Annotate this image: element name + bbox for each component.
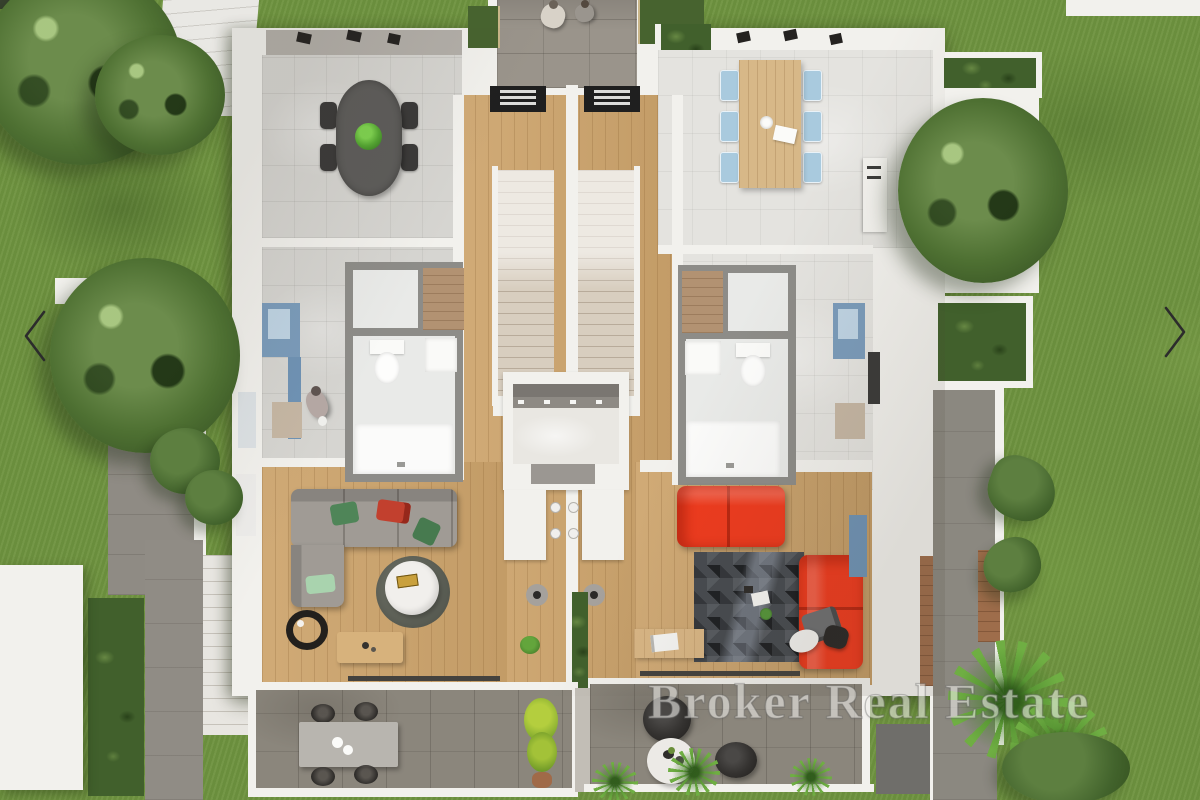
sofa-pillow-red	[376, 499, 412, 524]
bar-stool	[568, 528, 579, 539]
listing-photo-viewer: Broker Real Estate	[0, 0, 1200, 800]
bush	[185, 470, 243, 525]
shower-drain	[726, 463, 734, 468]
dining-chair	[401, 102, 418, 129]
terracotta-pot	[532, 772, 552, 788]
window-blue-left-facade	[262, 303, 300, 357]
stair-rail-right	[634, 166, 640, 406]
outdoor-chair	[354, 765, 378, 784]
wall-left-dining	[262, 238, 462, 247]
doormat-stripes	[500, 90, 536, 108]
kitchen-floor	[513, 408, 619, 464]
entry-doormat-right-unit	[584, 86, 640, 112]
table-bowl	[760, 116, 773, 129]
dining-chair-blue	[803, 152, 822, 183]
entry-doormat-left-unit	[490, 86, 546, 112]
entry-walkway	[497, 0, 637, 88]
previous-photo-button[interactable]	[12, 306, 60, 366]
planter-hedge	[944, 58, 1036, 92]
terrace-border	[862, 678, 870, 792]
terrace-palm	[592, 762, 638, 800]
black-side-table	[286, 610, 328, 650]
dining-chair-blue	[803, 111, 822, 142]
bean-bag	[643, 696, 691, 742]
shower-tray	[686, 421, 780, 477]
upper-terrace-left-wing	[266, 30, 462, 56]
next-photo-button[interactable]	[1150, 302, 1198, 362]
person-at-entry	[574, 0, 596, 24]
person-bag	[318, 416, 327, 426]
island-counter-right-unit	[582, 490, 624, 560]
person-head	[581, 0, 589, 8]
dining-chair	[320, 144, 337, 171]
bean-bag	[715, 742, 757, 778]
bush	[1002, 732, 1130, 800]
utility-box-left-facade	[238, 392, 256, 448]
terrace-palm	[790, 758, 832, 796]
dining-chair	[320, 102, 337, 129]
awning-bracket	[387, 33, 401, 45]
staircase-right-unit	[578, 170, 634, 398]
tree	[50, 258, 240, 453]
bench-decor	[371, 647, 376, 652]
plate	[343, 745, 353, 755]
shower-drain	[397, 462, 405, 467]
chevron-right-icon	[1150, 302, 1198, 362]
staircase-left-unit	[498, 170, 554, 398]
bathroom-sink	[685, 341, 721, 375]
sofa-red-top	[677, 486, 785, 547]
dining-chair-blue	[720, 70, 739, 101]
entry-lawn-left	[468, 6, 500, 48]
rug-light-streak	[694, 552, 804, 662]
bar-stool	[550, 502, 561, 513]
table-plant-centerpiece	[355, 123, 382, 150]
driveway	[145, 540, 203, 800]
wood-deck-edge	[920, 556, 933, 686]
rug-decor-dark	[744, 586, 753, 593]
round-coffee-table-white	[385, 561, 439, 615]
terrace-palm	[668, 748, 720, 796]
bar-stool	[568, 502, 579, 513]
indoor-planter-strip	[572, 592, 588, 692]
kitchen-cooktop	[518, 400, 614, 404]
hedge-strip-left	[88, 598, 144, 796]
garage-roof	[0, 565, 83, 790]
wardrobe-handle	[867, 166, 881, 169]
dining-chair	[401, 144, 418, 171]
window-blue-right-facade	[833, 303, 865, 359]
person-head	[311, 386, 321, 396]
plate	[332, 737, 343, 748]
wall-right-dining	[658, 245, 873, 254]
dining-chair-blue	[720, 111, 739, 142]
person-in-hallway	[304, 382, 330, 426]
railing-dark-right-facade	[868, 352, 880, 404]
potted-plant-small	[520, 636, 540, 654]
outdoor-chair	[311, 767, 335, 786]
wardrobe-right-unit	[863, 158, 887, 232]
potted-plant-terrace	[522, 696, 562, 792]
doormat-beige-left	[272, 402, 302, 438]
doormat-stripes	[594, 90, 630, 108]
side-table-center-left	[526, 584, 548, 606]
wood-bench	[337, 632, 403, 663]
planter-shrub	[938, 303, 1026, 381]
window-pane	[268, 309, 290, 339]
plant-foliage	[527, 732, 557, 772]
bathroom-right-unit	[678, 265, 796, 485]
outdoor-chair	[311, 704, 335, 723]
dining-chair-blue	[720, 152, 739, 183]
lower-patio-corner	[876, 724, 930, 794]
geometric-rug-right-unit	[694, 552, 804, 662]
terrace-border	[248, 682, 256, 797]
bar-stool	[550, 528, 561, 539]
table-plant	[668, 747, 675, 754]
kitchen-shelf	[513, 384, 619, 397]
toilet-bowl	[374, 352, 400, 384]
tree	[95, 35, 225, 155]
doormat-beige-right	[835, 403, 865, 439]
window-pane	[838, 309, 858, 339]
table-decor	[297, 620, 304, 627]
closet-wood-shelf	[418, 268, 464, 330]
outdoor-chair	[354, 702, 378, 721]
island-counter-left-unit	[504, 490, 546, 560]
bench-decor	[362, 642, 369, 649]
bathroom-sink	[425, 338, 457, 372]
tree	[898, 98, 1068, 283]
sofa-pillow-mint	[305, 574, 336, 595]
table-decor	[590, 591, 598, 599]
closet-wood-shelf	[682, 271, 728, 333]
bathroom-left-unit	[345, 262, 463, 482]
kitchen-table	[531, 464, 595, 484]
rug-plant-small	[760, 608, 772, 620]
glass-door-track-left-unit	[348, 676, 500, 681]
garden-wall-right	[931, 382, 1001, 390]
person-head	[549, 0, 558, 9]
window-blue-strip-right	[849, 515, 867, 577]
person-at-entry	[539, 0, 567, 30]
glass-door-track-right-unit	[640, 671, 800, 676]
chevron-left-icon	[12, 306, 60, 366]
wardrobe-handle	[867, 176, 881, 179]
table-decor	[533, 591, 541, 599]
laptop	[650, 633, 679, 653]
dining-chair-blue	[803, 70, 822, 101]
wall-band-top-right	[1066, 0, 1200, 16]
toilet-bowl	[740, 355, 766, 387]
